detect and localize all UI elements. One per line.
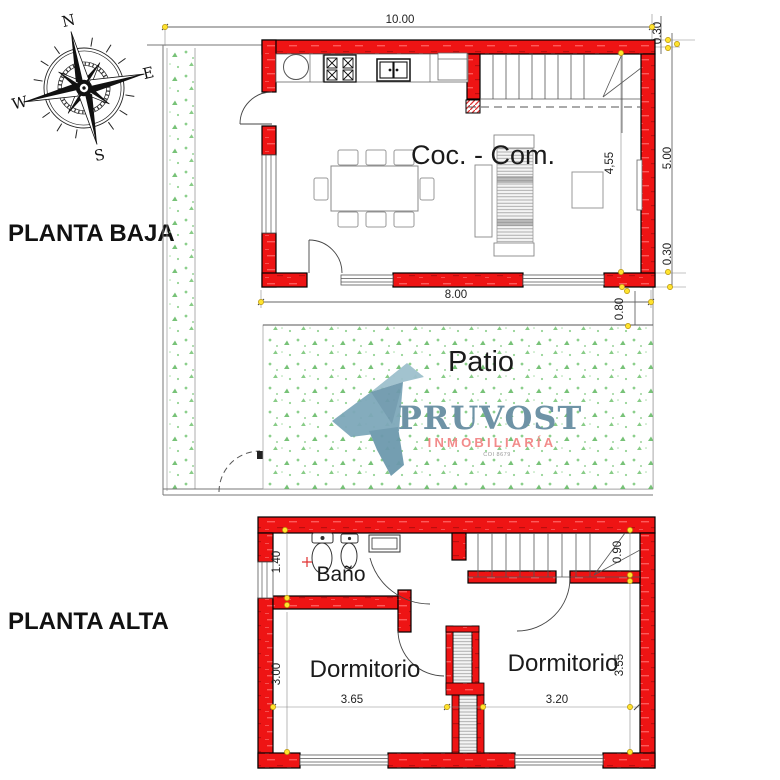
bathroom-sink-icon (369, 535, 400, 552)
bedroom-left-label: Dormitorio (310, 656, 421, 683)
side-table (572, 172, 603, 208)
compass-rose-icon: N E W S (0, 0, 171, 181)
kitchen-living-label: Coc. - Com. (411, 140, 555, 170)
planta-baja-title: PLANTA BAJA (8, 220, 175, 247)
dim-wall-bottom: 0.30 (662, 243, 674, 265)
side-yard-grass (168, 48, 195, 489)
gate-post (257, 451, 263, 459)
patio-door-arc (309, 240, 342, 273)
dim-top-width: 10.00 (386, 14, 415, 26)
kitchen-sink-icon (284, 55, 309, 80)
stove-icon (324, 55, 356, 82)
brand-registration: COI 8679 (483, 452, 511, 458)
compass-east-label: E (141, 63, 156, 83)
cad-cross-marker (302, 557, 312, 567)
bathroom-wall (273, 596, 398, 609)
yard-gate-arc (219, 451, 260, 492)
bedroom-right-door-arc (517, 578, 570, 631)
bathroom-right-stub (452, 533, 466, 560)
compass-north-label: N (60, 11, 77, 31)
dim-right-height: 5.00 (662, 147, 674, 169)
dim-stair-width: 0.90 (612, 541, 624, 563)
patio-area: Patio PRUVOST INMOBILIARÍA COI 8679 (263, 325, 653, 489)
dim-bed-left-height: 3.00 (271, 663, 283, 685)
dim-bed-right-width: 3.20 (546, 694, 568, 706)
dim-bed-right-height: 3.55 (614, 654, 626, 676)
planta-alta-title: PLANTA ALTA (8, 608, 169, 635)
dim-bath-height: 1.40 (271, 551, 283, 573)
brand-name: PRUVOST (398, 399, 583, 437)
kitchen-counter (276, 53, 468, 82)
compass-south-label: S (92, 145, 106, 165)
floor-plan-canvas: N E W S PLANTA BAJA PLANTA ALTA 10.00 (0, 0, 780, 780)
dim-inner-height: 4,55 (604, 152, 616, 174)
dim-bed-left-width: 3.65 (341, 694, 363, 706)
alta-floor-plan: Baño Dormitorio Dormitorio 1.40 0.90 3.0… (258, 517, 655, 768)
bedroom-right-label: Dormitorio (508, 650, 619, 677)
patio-label: Patio (448, 346, 514, 378)
staircase-baja (468, 54, 641, 133)
compass-west-label: W (10, 92, 30, 113)
dim-bottom-width: 8.00 (445, 289, 467, 301)
oven-icon (377, 59, 410, 81)
brand-subtitle: INMOBILIARÍA (428, 435, 557, 450)
dim-patio-offset: 0.80 (614, 298, 626, 320)
bathroom-label: Baño (316, 563, 365, 586)
floor-plan-page: N E W S PLANTA BAJA PLANTA ALTA 10.00 (0, 0, 780, 780)
duct-shaft (446, 626, 484, 753)
side-door-arc (240, 92, 272, 124)
baja-floor-plan: 10.00 0.30 5.00 0.30 4,55 8.00 0.80 (162, 14, 695, 326)
stair-partition-wall (467, 54, 480, 99)
right-wall-window (637, 160, 642, 210)
